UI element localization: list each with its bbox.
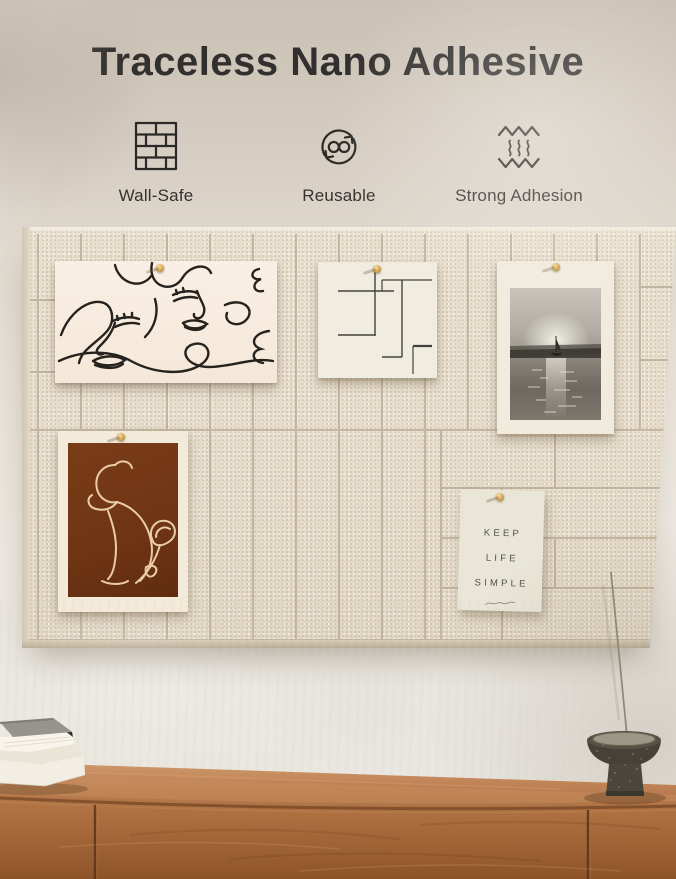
feature-wall-safe: Wall-Safe: [92, 120, 220, 206]
push-pin: [156, 264, 164, 272]
adhesion-waves-icon: [493, 120, 545, 174]
signature-mark: [482, 598, 518, 609]
feature-label: Wall-Safe: [119, 186, 194, 205]
push-pin: [552, 263, 560, 271]
push-pin: [117, 433, 125, 441]
print-quote-card: KEEP LIFE SIMPLE: [457, 489, 544, 612]
feature-reusable: Reusable: [276, 120, 402, 206]
product-title: Traceless Nano Adhesive: [0, 40, 676, 85]
product-image: Traceless Nano Adhesive Wall-Safe: [0, 0, 676, 879]
print-geometric-lines: [318, 262, 437, 378]
quote-line-2: LIFE: [459, 538, 544, 565]
reuse-cycle-icon: [313, 120, 365, 174]
feature-label: Strong Adhesion: [455, 186, 583, 205]
quote-line-3: SIMPLE: [458, 563, 543, 590]
print-woman-line-art: [58, 431, 188, 612]
incense-holder: [575, 555, 676, 810]
print-sailboat-photo: [497, 261, 614, 434]
feature-label: Reusable: [302, 186, 375, 205]
board-top-edge: [22, 227, 676, 233]
books-stack: [0, 705, 100, 795]
geometric-line-art: [318, 262, 437, 378]
brick-wall-icon: [130, 120, 182, 174]
faces-line-art: [55, 261, 277, 383]
print-abstract-faces: [55, 261, 277, 383]
terracotta-artwork: [68, 443, 178, 597]
feature-strong-adhesion: Strong Adhesion: [444, 120, 594, 206]
sailboat-photo: [510, 288, 601, 420]
board-left-edge: [22, 227, 31, 648]
woman-line-art: [68, 443, 178, 597]
push-pin: [496, 493, 504, 501]
push-pin: [373, 265, 381, 273]
